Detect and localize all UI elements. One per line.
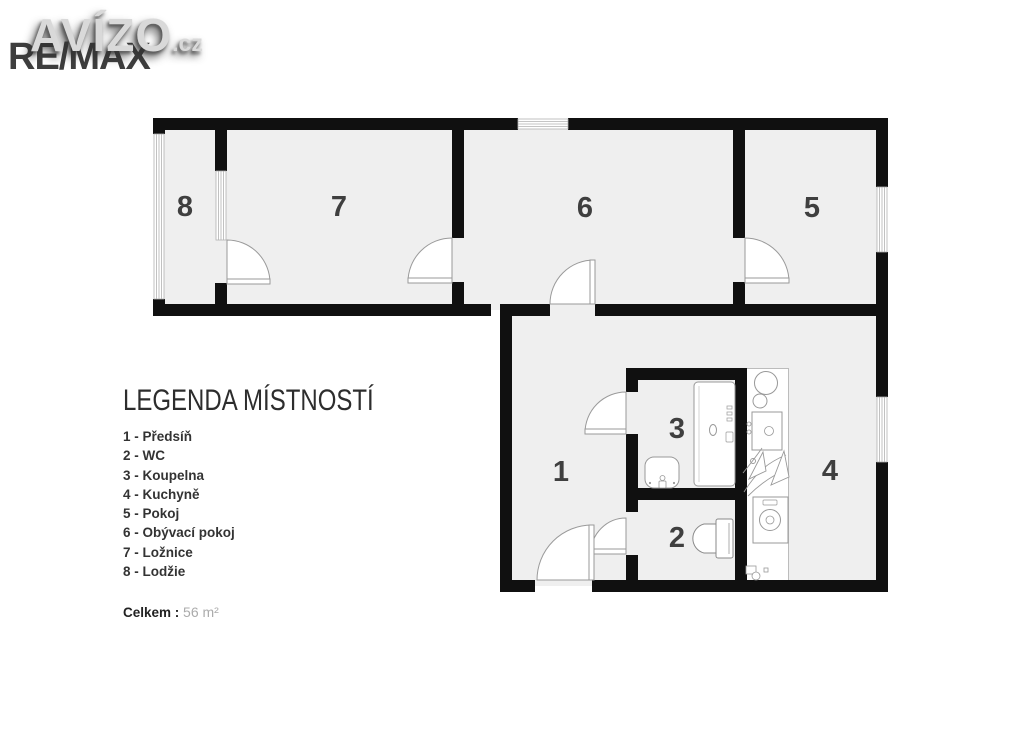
window-room5	[877, 187, 887, 252]
room-label-4: 4	[822, 455, 838, 487]
legend-item: 4 - Kuchyně	[123, 485, 413, 504]
window-loggia-divider	[216, 171, 226, 240]
washing-machine-icon	[753, 497, 788, 543]
window-loggia-left	[154, 134, 164, 299]
legend-item: 6 - Obývací pokoj	[123, 523, 413, 542]
legend-item: 2 - WC	[123, 446, 413, 465]
stove-icon	[747, 412, 782, 450]
legend-title: LEGENDA MÍSTNOSTÍ	[123, 384, 355, 418]
room-label-7: 7	[331, 191, 347, 223]
room-label-1: 1	[553, 456, 569, 488]
legend-item: 5 - Pokoj	[123, 504, 413, 523]
logo: RE/MAX AVÍZO.cz	[0, 0, 280, 100]
total-area-label: Celkem :	[123, 605, 179, 620]
avizo-tld-text: .cz	[172, 30, 203, 56]
total-area: Celkem : 56 m²	[123, 604, 413, 620]
legend-item: 8 - Lodžie	[123, 562, 413, 581]
total-area-value: 56 m²	[183, 604, 219, 620]
floorplan-page: 1 2 3 4 5 6 7 8 RE/MAX AVÍZO.cz LEGENDA …	[0, 0, 1024, 724]
window-kitchen	[877, 397, 887, 462]
room-legend: LEGENDA MÍSTNOSTÍ 1 - Předsíň 2 - WC 3 -…	[123, 384, 413, 620]
room-label-3: 3	[669, 413, 685, 445]
avizo-logo: AVÍZO.cz	[30, 8, 203, 62]
room-label-2: 2	[669, 522, 685, 554]
legend-item: 1 - Předsíň	[123, 427, 413, 446]
room-label-5: 5	[804, 192, 820, 224]
legend-item: 3 - Koupelna	[123, 466, 413, 485]
room-label-6: 6	[577, 192, 593, 224]
bathtub	[694, 382, 735, 486]
legend-item: 7 - Ložnice	[123, 543, 413, 562]
avizo-brand-text: AVÍZO	[30, 9, 172, 61]
window-top	[518, 119, 568, 129]
legend-items: 1 - Předsíň 2 - WC 3 - Koupelna 4 - Kuch…	[123, 427, 413, 581]
washbasin	[645, 457, 679, 488]
room-label-8: 8	[177, 191, 193, 223]
